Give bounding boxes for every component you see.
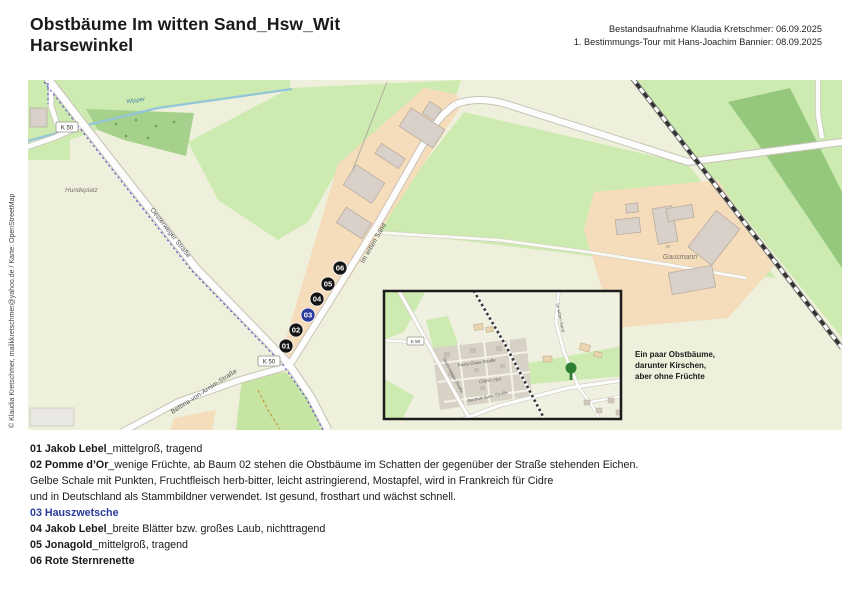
gausmann-label: Gausmann [663,254,697,261]
inset-map: K 50 Oesterweger Straße Paula-Claas-Stra… [381,286,625,422]
legend-tree-desc: _mittelgroß, tragend [92,539,188,551]
title-line2: Harsewinkel [30,35,340,56]
legend-tree-name: 04 Jakob Lebel [30,523,107,535]
legend-tree-desc: und in Deutschland als Stammbildner verw… [30,491,456,503]
tree-marker-06: 06 [333,261,347,275]
svg-text:K 50: K 50 [61,126,74,132]
k50-shield-south: K 50 [258,356,280,366]
marker-number: 03 [304,311,312,320]
tree-marker-01: 01 [279,339,293,353]
inset-k50-shield: K 50 [407,337,424,345]
map-credit: © Klaudia Kretschmer, mailkkretschmer@ya… [9,78,16,428]
inset-note: Ein paar Obstbäume, darunter Kirschen, a… [635,350,715,381]
legend-tree-name: 05 Jonagold [30,539,92,551]
page-title: Obstbäume Im witten Sand_Hsw_Wit Harsewi… [30,14,340,56]
marker-number: 05 [324,280,333,289]
legend-tree-desc: _wenige Früchte, ab Baum 02 stehen die O… [108,459,638,471]
legend-tree-desc: Gelbe Schale mit Punkten, Fruchtfleisch … [30,475,553,487]
legend-line-2: 02 Pomme d’Or_wenige Früchte, ab Baum 02… [30,457,638,473]
marker-number: 06 [336,264,344,273]
legend-tree-name: 01 Jakob Lebel [30,443,107,455]
legend-line-7: 05 Jonagold_mittelgroß, tragend [30,537,638,553]
svg-text:K 50: K 50 [263,360,276,366]
marker-number: 01 [282,342,291,351]
tree-marker-05: 05 [321,277,335,291]
legend-line-6: 04 Jakob Lebel_breite Blätter bzw. große… [30,521,638,537]
hundeplatz-label: Hundeplatz [65,187,99,194]
legend-tree-desc: _mittelgroß, tragend [107,443,203,455]
tree-legend: 01 Jakob Lebel_mittelgroß, tragend 02 Po… [30,441,638,569]
note-line1: Ein paar Obstbäume, [635,350,715,359]
meta-line2: 1. Bestimmungs-Tour mit Hans-Joachim Ban… [574,36,822,49]
marker-number: 04 [313,295,322,304]
legend-tree-name: 03 Hauszwetsche [30,507,119,519]
legend-line-1: 01 Jakob Lebel_mittelgroß, tragend [30,441,638,457]
house-number-label: 47 [665,244,671,249]
legend-tree-name: 02 Pomme d’Or [30,459,108,471]
note-line2: darunter Kirschen, [635,361,706,370]
map-canvas: K 50 K 50 Wipper Hundeplatz Oesterweger … [28,80,842,430]
legend-line-8: 06 Rote Sternrenette [30,553,638,569]
tree-marker-02: 02 [289,323,303,337]
legend-line-5: 03 Hauszwetsche [30,505,638,521]
legend-tree-name: 06 Rote Sternrenette [30,555,135,567]
marker-number: 02 [292,326,300,335]
legend-line-4: und in Deutschland als Stammbildner verw… [30,489,638,505]
header-meta: Bestandsaufnahme Klaudia Kretschmer: 06.… [574,23,822,48]
k50-shield-north: K 50 [56,122,78,132]
tree-marker-04: 04 [310,292,324,306]
tree-marker-03: 03 [301,308,315,322]
legend-tree-desc: _breite Blätter bzw. großes Laub, nichtt… [107,523,326,535]
meta-line1: Bestandsaufnahme Klaudia Kretschmer: 06.… [574,23,822,36]
title-line1: Obstbäume Im witten Sand_Hsw_Wit [30,14,340,35]
legend-line-3: Gelbe Schale mit Punkten, Fruchtfleisch … [30,473,638,489]
note-line3: aber ohne Früchte [635,372,705,381]
page: Obstbäume Im witten Sand_Hsw_Wit Harsewi… [0,0,842,595]
svg-text:K 50: K 50 [411,339,421,344]
